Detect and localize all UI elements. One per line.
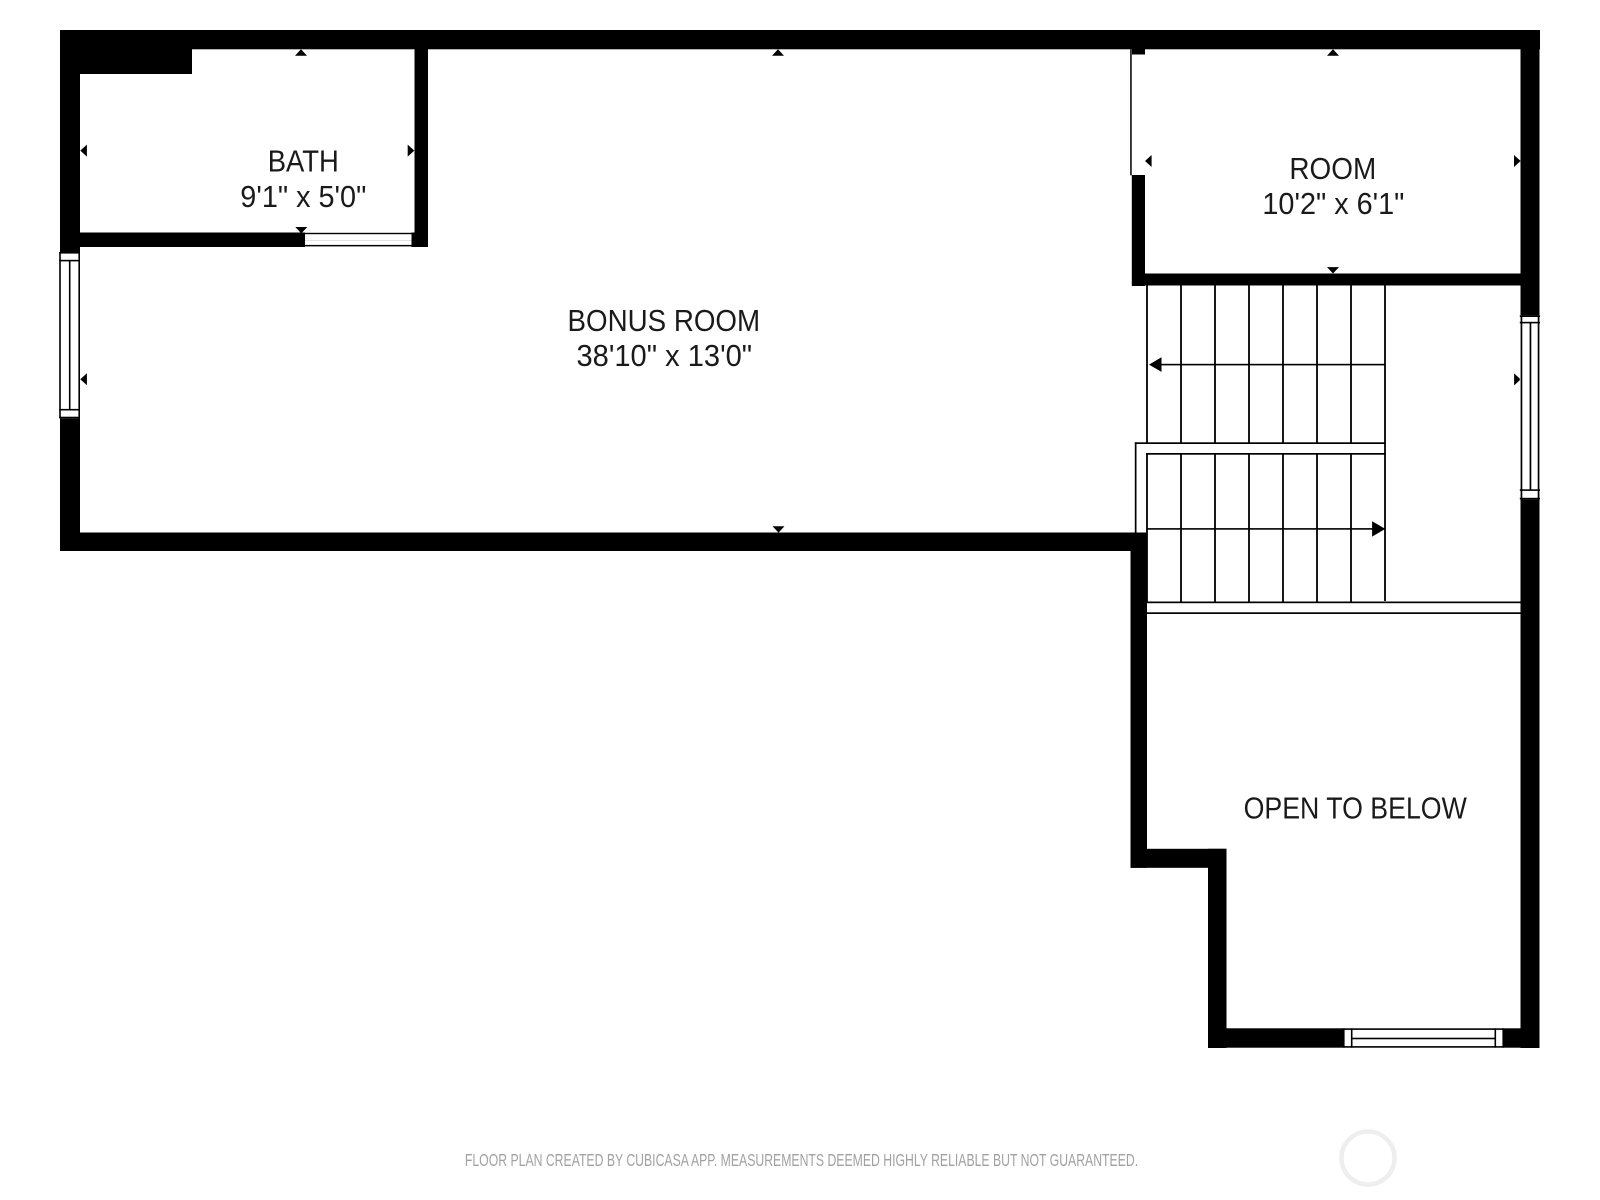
svg-text:OPEN TO BELOW: OPEN TO BELOW — [1244, 792, 1468, 826]
svg-text:10'2" x 6'1": 10'2" x 6'1" — [1262, 187, 1404, 221]
svg-text:9'1" x 5'0": 9'1" x 5'0" — [240, 180, 366, 214]
svg-text:FLOOR PLAN CREATED BY CUBICASA: FLOOR PLAN CREATED BY CUBICASA APP. MEAS… — [465, 1151, 1138, 1171]
svg-text:ROOM: ROOM — [1289, 152, 1376, 187]
svg-text:BONUS ROOM: BONUS ROOM — [567, 304, 760, 339]
svg-text:BATH: BATH — [268, 145, 339, 179]
svg-text:38'10" x 13'0": 38'10" x 13'0" — [576, 339, 752, 373]
